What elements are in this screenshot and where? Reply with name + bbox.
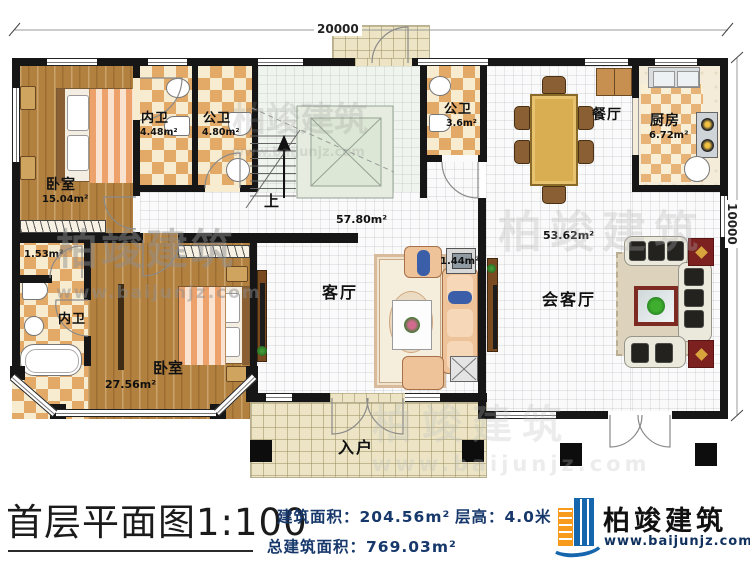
- plan-linework: [0, 0, 750, 480]
- side-table-x: [452, 358, 476, 380]
- door-arc-entry-r: [367, 398, 403, 434]
- door-arc-bath2: [442, 162, 478, 198]
- room-area-ensuite1: 4.48m²: [140, 128, 178, 138]
- closet-area-label: 1.53m²: [24, 250, 63, 260]
- room-label-entry: 入户: [338, 440, 374, 456]
- room-label-ensuite2: 内卫: [58, 313, 86, 326]
- room-label-reception: 会客厅: [542, 292, 596, 308]
- room-area-living: 57.80m²: [336, 214, 387, 225]
- brand-url: www.baijunjz.com: [604, 534, 750, 549]
- floor-height-stat: 层高：4.0米: [455, 505, 551, 527]
- door-arc-back: [372, 27, 408, 63]
- room-label-ensuite1: 内卫: [141, 112, 169, 125]
- stair-up-label: 上: [264, 194, 279, 209]
- door-arc-bath1: [205, 153, 240, 188]
- door-arc-bedroom2: [143, 240, 179, 276]
- room-area-bath2: 3.6m²: [446, 119, 477, 129]
- room-label-bath1: 公卫: [203, 112, 231, 125]
- floor-plan-page: 卧室 15.04m² 内卫 4.48m² 公卫 4.80m² 上 57.80m²…: [0, 0, 750, 567]
- room-label-bath2: 公卫: [444, 103, 472, 116]
- door-arc-reception-r: [638, 415, 670, 447]
- brand-logo: [550, 494, 600, 556]
- room-label-bedroom2: 卧室: [153, 361, 183, 376]
- room-area-bath1: 4.80m²: [202, 128, 240, 138]
- door-arc-reception-l: [610, 415, 642, 447]
- title-underline: [8, 550, 253, 552]
- shaft-area-label: 1.44m²: [440, 257, 479, 267]
- void-shaft: [297, 106, 393, 198]
- total-area-stat: 总建筑面积：769.03m²: [267, 535, 457, 557]
- room-label-kitchen: 厨房: [650, 114, 680, 128]
- page-title: 首层平面图1:100: [6, 492, 308, 546]
- room-label-living: 客厅: [322, 285, 358, 301]
- room-area-bedroom1: 15.04m²: [42, 195, 88, 205]
- dimension-right-label: 10000: [725, 200, 739, 248]
- room-label-dining: 餐厅: [592, 108, 622, 122]
- dimension-top-label: 20000: [314, 22, 362, 36]
- room-label-bedroom1: 卧室: [46, 178, 76, 192]
- door-arc-entry-l: [332, 398, 368, 434]
- brand-name: 柏竣建筑: [603, 499, 727, 538]
- door-arc-bedroom1: [104, 197, 136, 229]
- building-area-stat: 建筑面积：204.56m²: [277, 505, 450, 527]
- room-area-kitchen: 6.72m²: [649, 131, 688, 141]
- room-area-bedroom2: 27.56m²: [105, 379, 156, 390]
- room-area-reception: 53.62m²: [543, 230, 594, 241]
